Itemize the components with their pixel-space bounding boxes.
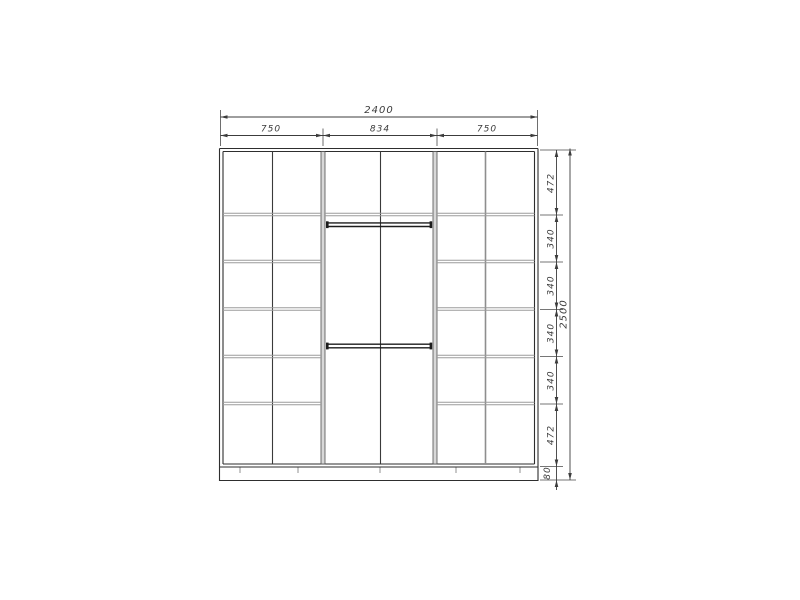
dim-label-right-segment-6: 472 — [547, 425, 557, 445]
rail-bracket-left — [326, 343, 329, 350]
dimension-annotations: 2400 750 834 750 472 340 340 340 340 472… — [221, 105, 577, 490]
dimension-arrowheads — [221, 115, 572, 487]
rail-bracket-right — [430, 343, 433, 350]
hanging-rail-upper — [326, 221, 432, 228]
dim-label-top-segment-middle: 834 — [370, 125, 390, 135]
drawing-canvas: 2400 750 834 750 472 340 340 340 340 472… — [0, 0, 800, 600]
rail-bracket-left — [326, 221, 329, 228]
dim-label-right-segment-1: 472 — [547, 173, 557, 193]
wardrobe-carcass — [220, 149, 539, 482]
dim-label-right-segment-2: 340 — [547, 228, 557, 248]
dim-label-total-height: 2500 — [559, 299, 570, 328]
rail-tube — [328, 223, 431, 227]
dim-label-right-segment-4: 340 — [547, 323, 557, 343]
partition-left — [321, 152, 325, 465]
plinth-leg-ticks — [240, 468, 520, 474]
dim-label-top-segment-right: 750 — [477, 125, 497, 135]
dim-label-plinth-height: 80 — [543, 466, 553, 479]
shelf-middle-top — [325, 213, 433, 216]
dim-label-total-width: 2400 — [364, 105, 393, 116]
rail-bracket-right — [430, 221, 433, 228]
rail-tube — [328, 344, 431, 348]
dim-label-right-segment-3: 340 — [547, 275, 557, 295]
dim-label-right-segment-5: 340 — [547, 370, 557, 390]
partition-right — [433, 152, 437, 465]
hanging-rail-lower — [326, 343, 432, 350]
technical-drawing: 2400 750 834 750 472 340 340 340 340 472… — [0, 0, 800, 600]
dim-label-top-segment-left: 750 — [261, 125, 281, 135]
carcass-outline — [220, 149, 539, 482]
